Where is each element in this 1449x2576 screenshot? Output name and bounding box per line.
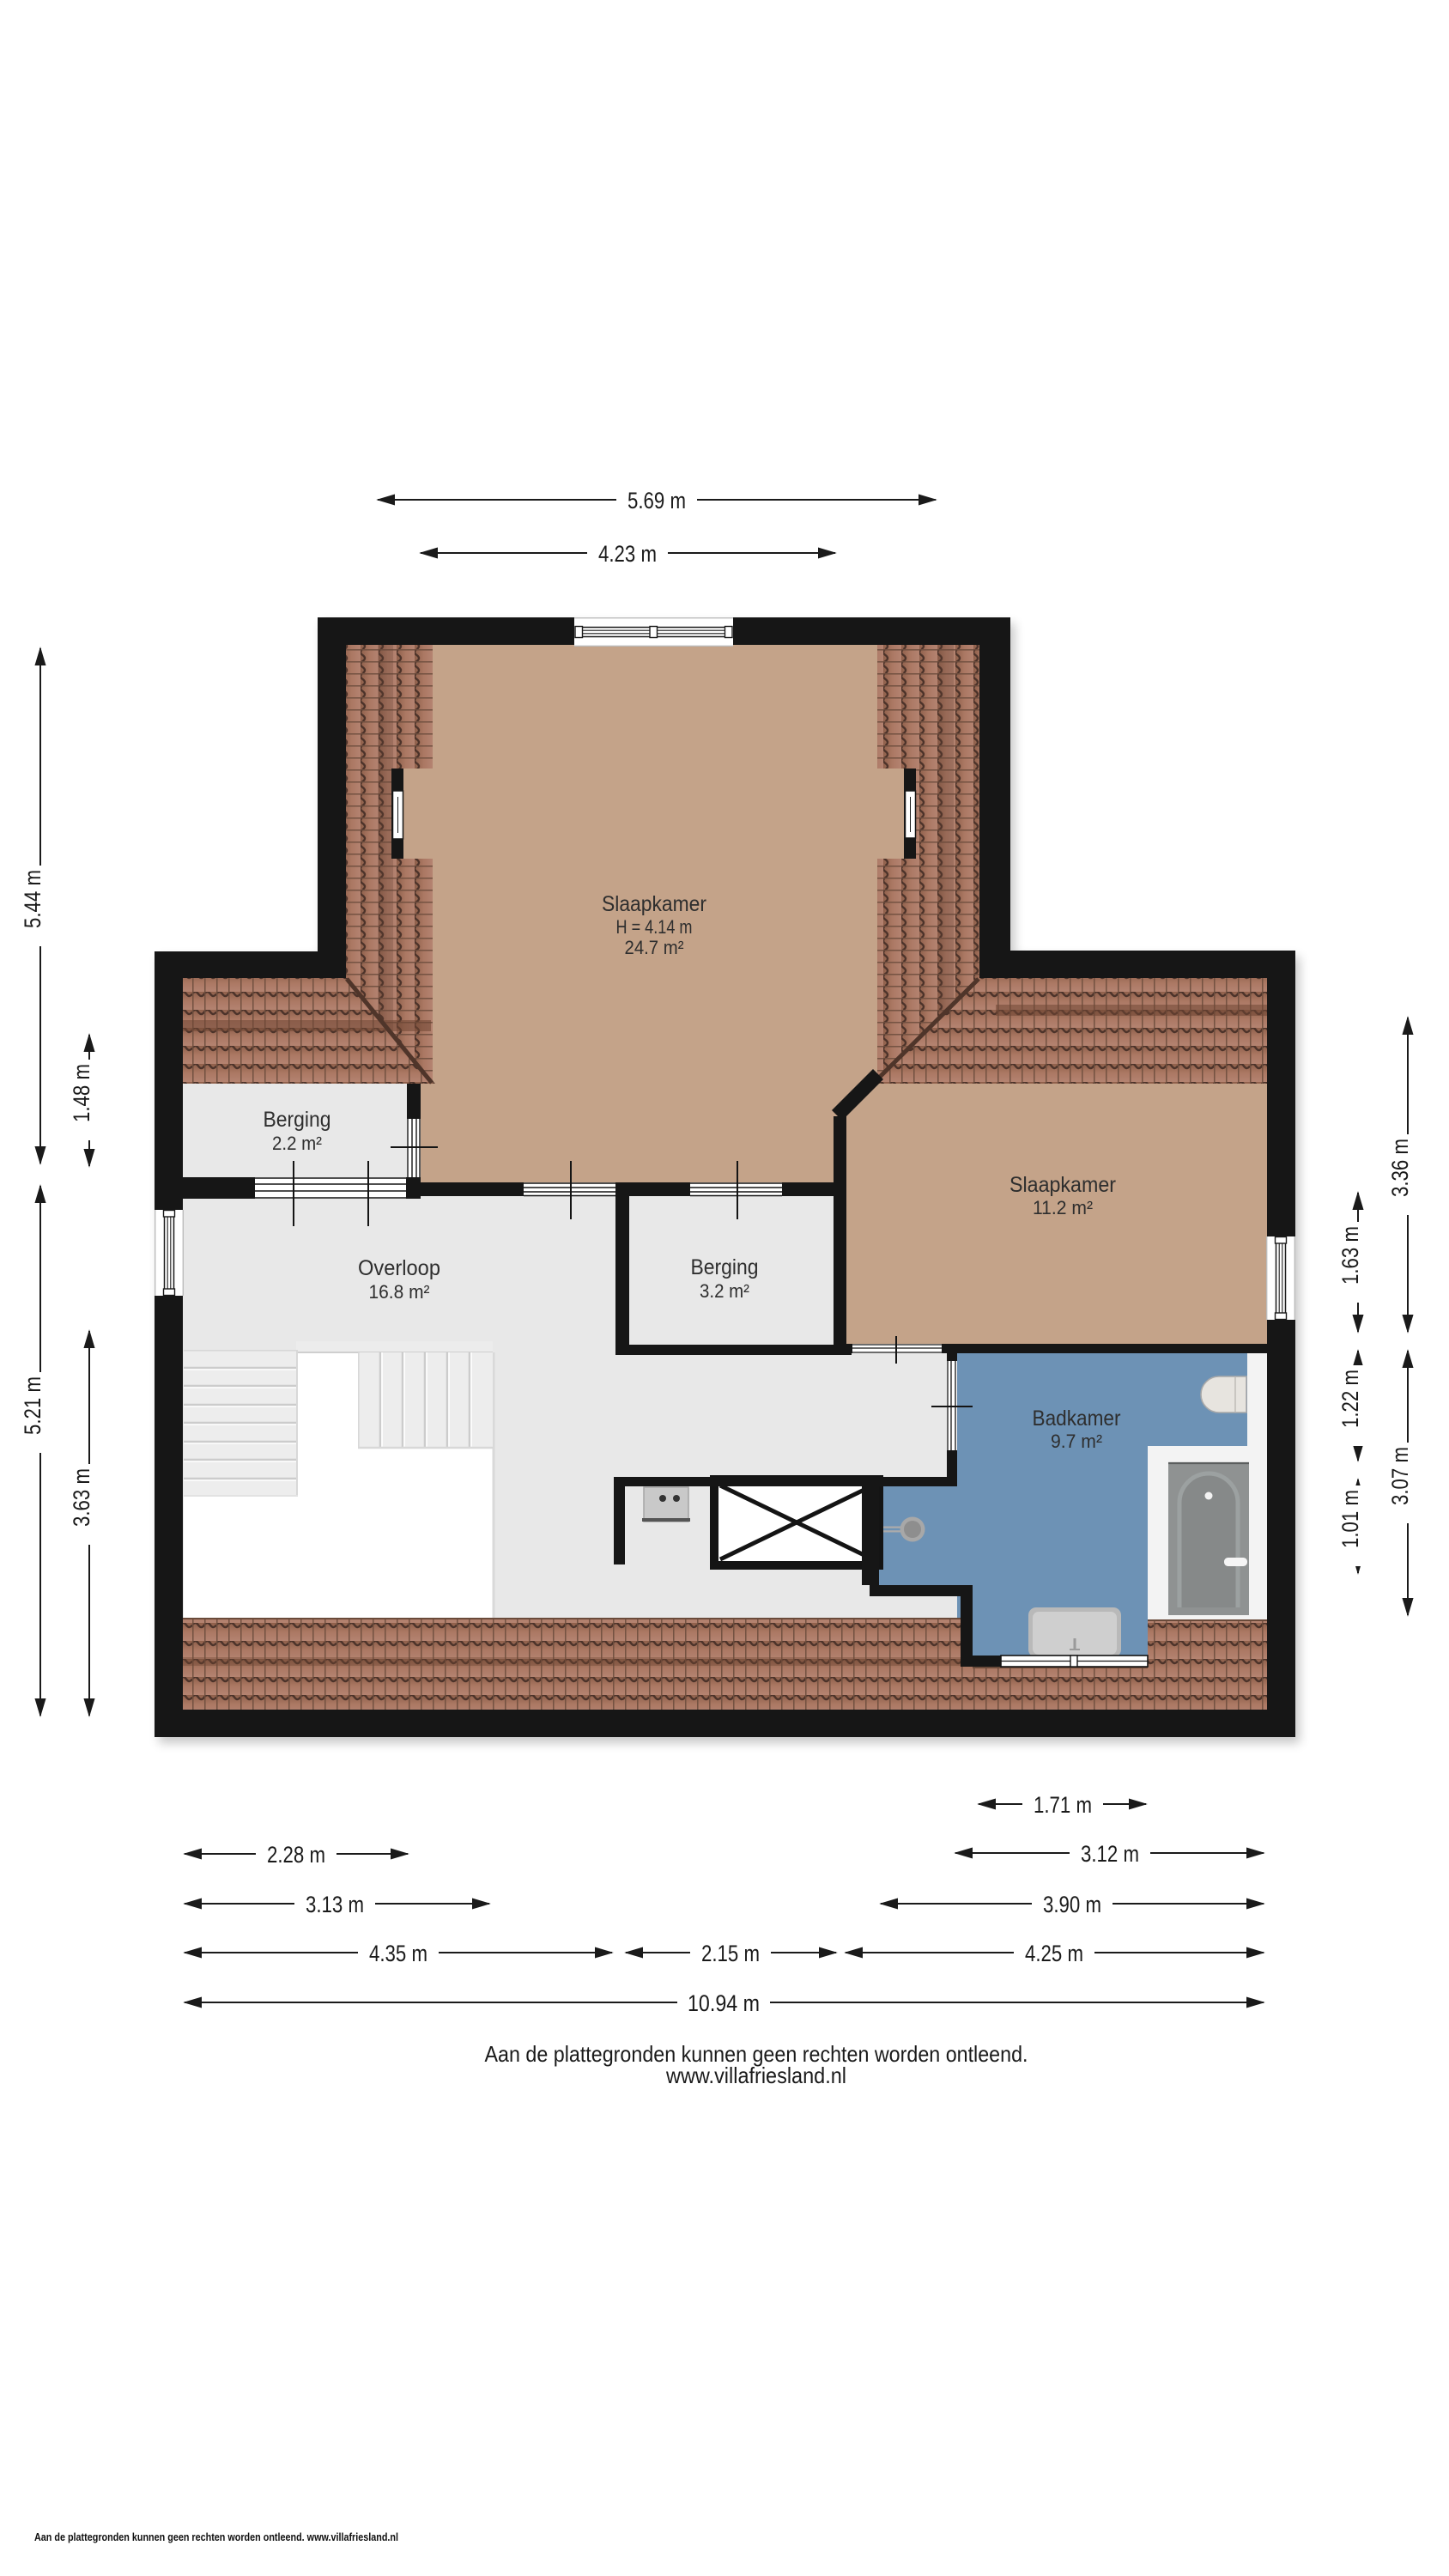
svg-text:4.35 m: 4.35 m [369, 1941, 427, 1966]
svg-text:3.13 m: 3.13 m [306, 1892, 364, 1917]
svg-text:www.villafriesland.nl: www.villafriesland.nl [665, 2063, 846, 2088]
svg-text:16.8 m²: 16.8 m² [369, 1281, 430, 1303]
svg-text:5.44 m: 5.44 m [20, 870, 45, 928]
svg-text:2.28 m: 2.28 m [267, 1842, 325, 1868]
svg-text:2.2 m²: 2.2 m² [272, 1133, 322, 1154]
svg-text:3.63 m: 3.63 m [69, 1468, 94, 1527]
svg-text:5.21 m: 5.21 m [20, 1376, 45, 1435]
svg-text:2.15 m: 2.15 m [701, 1941, 760, 1966]
svg-text:11.2 m²: 11.2 m² [1033, 1197, 1093, 1218]
svg-text:1.22 m: 1.22 m [1337, 1370, 1363, 1428]
svg-text:1.71 m: 1.71 m [1034, 1792, 1092, 1818]
svg-text:1.01 m: 1.01 m [1337, 1490, 1363, 1548]
svg-text:3.12 m: 3.12 m [1081, 1841, 1139, 1867]
svg-text:Aan de plattegronden kunnen ge: Aan de plattegronden kunnen geen rechten… [34, 2530, 398, 2543]
svg-text:Slaapkamer: Slaapkamer [602, 892, 706, 916]
svg-text:H = 4.14 m: H = 4.14 m [616, 916, 693, 938]
svg-text:1.48 m: 1.48 m [69, 1064, 94, 1122]
svg-text:3.2 m²: 3.2 m² [700, 1280, 749, 1302]
svg-text:3.36 m: 3.36 m [1387, 1139, 1413, 1197]
svg-text:4.23 m: 4.23 m [598, 541, 657, 567]
svg-text:24.7 m²: 24.7 m² [625, 937, 684, 958]
svg-text:Berging: Berging [691, 1255, 759, 1279]
svg-text:1.63 m: 1.63 m [1337, 1226, 1363, 1285]
svg-text:5.69 m: 5.69 m [627, 488, 686, 513]
svg-text:9.7 m²: 9.7 m² [1051, 1431, 1102, 1452]
svg-text:Berging: Berging [264, 1108, 331, 1132]
svg-text:10.94 m: 10.94 m [688, 1990, 760, 2016]
svg-text:Slaapkamer: Slaapkamer [1009, 1173, 1116, 1197]
svg-text:Badkamer: Badkamer [1033, 1406, 1121, 1431]
svg-text:3.90 m: 3.90 m [1043, 1892, 1101, 1917]
svg-text:Overloop: Overloop [358, 1256, 440, 1280]
svg-text:4.25 m: 4.25 m [1025, 1941, 1083, 1966]
svg-text:3.07 m: 3.07 m [1387, 1447, 1413, 1505]
